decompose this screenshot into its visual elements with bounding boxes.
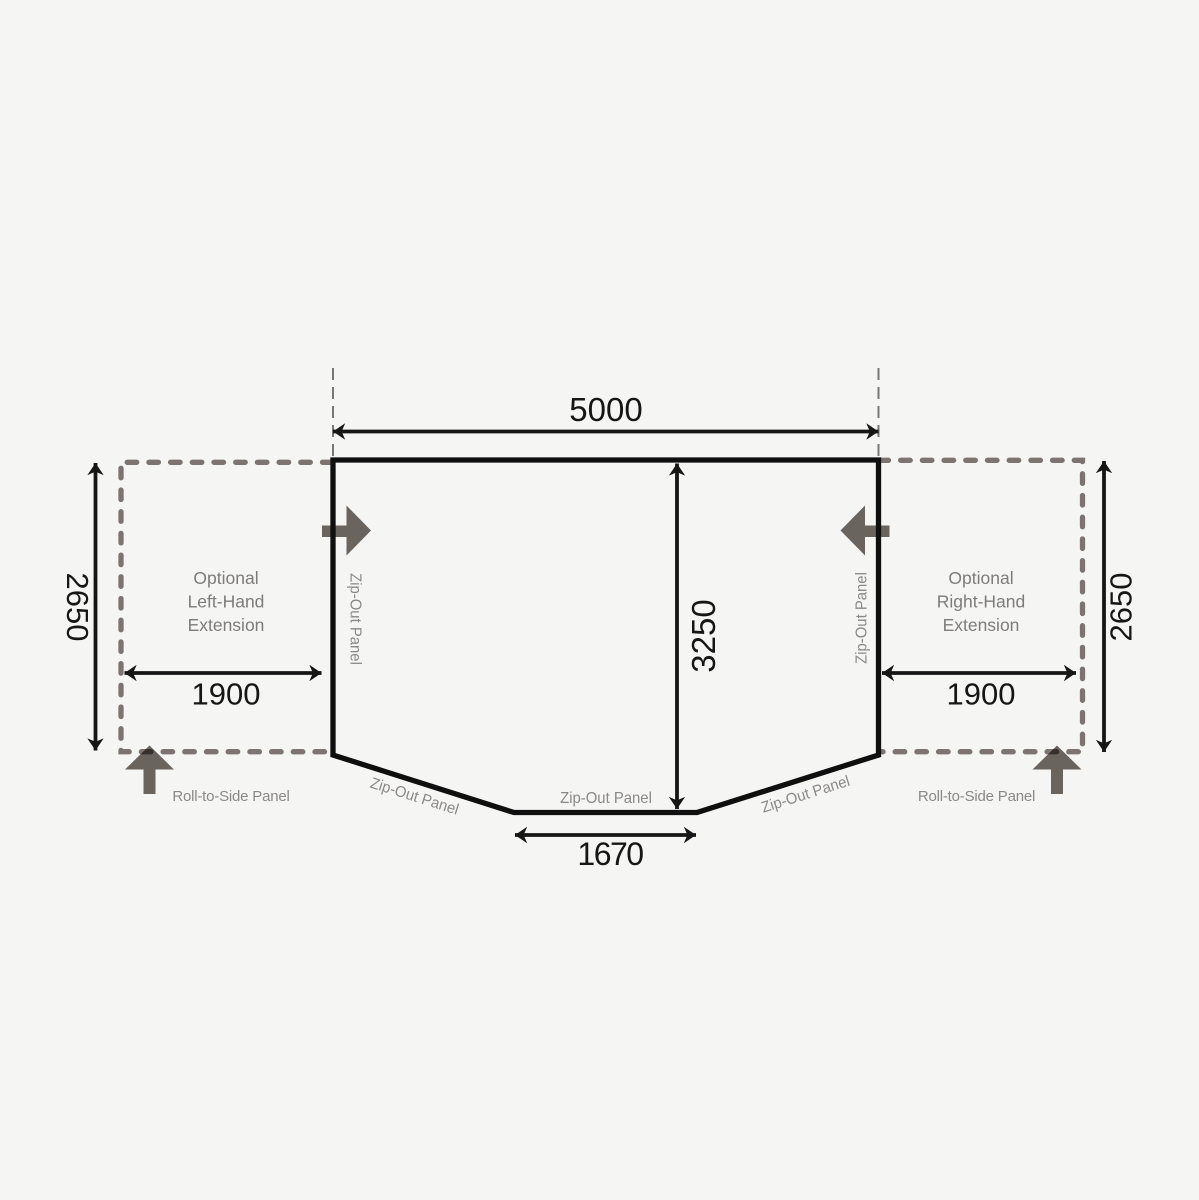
svg-text:Roll-to-Side Panel: Roll-to-Side Panel: [918, 788, 1035, 805]
svg-text:Roll-to-Side Panel: Roll-to-Side Panel: [172, 788, 289, 805]
svg-text:3250: 3250: [685, 599, 722, 672]
svg-text:2650: 2650: [1104, 573, 1139, 642]
svg-text:OptionalLeft-HandExtension: OptionalLeft-HandExtension: [188, 568, 265, 635]
svg-text:OptionalRight-HandExtension: OptionalRight-HandExtension: [937, 568, 1026, 635]
svg-text:Zip-Out Panel: Zip-Out Panel: [853, 572, 870, 664]
svg-text:Zip-Out Panel: Zip-Out Panel: [346, 573, 363, 665]
svg-text:1670: 1670: [577, 836, 643, 872]
svg-text:2650: 2650: [60, 573, 95, 642]
svg-text:1900: 1900: [947, 677, 1016, 712]
svg-text:Zip-Out Panel: Zip-Out Panel: [560, 790, 652, 807]
svg-text:1900: 1900: [192, 677, 261, 712]
svg-text:5000: 5000: [569, 391, 642, 428]
